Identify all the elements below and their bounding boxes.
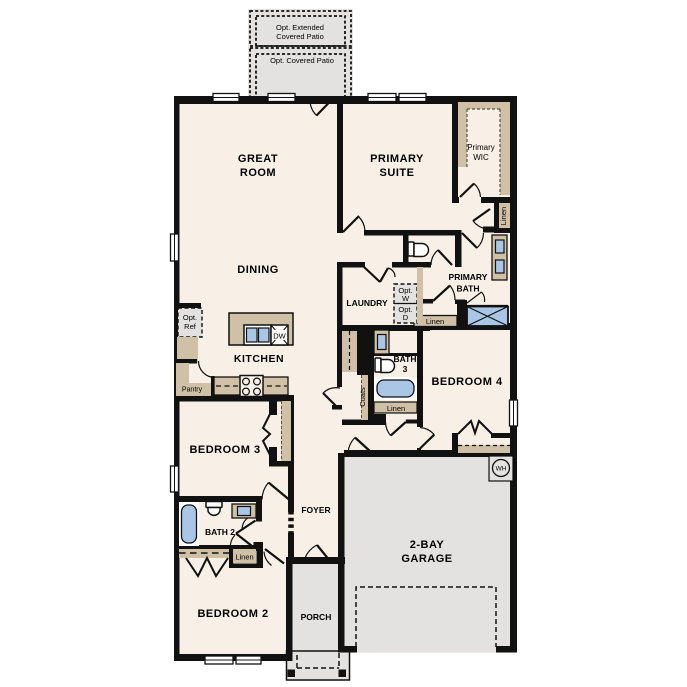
svg-text:2-BAY: 2-BAY: [410, 539, 445, 551]
svg-text:KITCHEN: KITCHEN: [234, 353, 284, 365]
svg-text:PRIMARY: PRIMARY: [370, 153, 424, 165]
svg-text:PRIMARY: PRIMARY: [449, 272, 488, 282]
svg-text:W: W: [402, 294, 410, 303]
svg-text:D: D: [403, 313, 409, 322]
svg-text:LAUNDRY: LAUNDRY: [346, 298, 388, 308]
svg-text:Primary: Primary: [467, 143, 495, 152]
svg-text:Linen: Linen: [499, 207, 508, 225]
svg-text:BATH: BATH: [394, 354, 417, 364]
svg-text:WIC: WIC: [473, 153, 489, 162]
svg-text:DW: DW: [273, 332, 286, 341]
svg-text:Linen: Linen: [235, 553, 253, 562]
svg-text:Pantry: Pantry: [182, 387, 203, 394]
svg-text:BEDROOM 3: BEDROOM 3: [189, 444, 260, 456]
svg-text:PORCH: PORCH: [301, 612, 332, 622]
svg-text:Linen: Linen: [387, 404, 405, 413]
svg-text:DINING: DINING: [237, 264, 279, 276]
svg-text:BATH: BATH: [457, 284, 480, 294]
svg-text:Opt. Extended: Opt. Extended: [276, 23, 324, 32]
svg-text:SUITE: SUITE: [380, 167, 415, 179]
svg-text:BATH 2: BATH 2: [205, 527, 235, 537]
svg-text:BEDROOM 2: BEDROOM 2: [197, 608, 268, 620]
svg-text:ROOM: ROOM: [240, 167, 276, 179]
svg-text:WH: WH: [496, 466, 507, 473]
svg-text:3: 3: [403, 364, 408, 374]
svg-text:Ref: Ref: [184, 322, 197, 331]
svg-text:FOYER: FOYER: [301, 505, 330, 515]
svg-text:GREAT: GREAT: [238, 153, 278, 165]
svg-text:BEDROOM 4: BEDROOM 4: [431, 376, 503, 388]
svg-text:Covered Patio: Covered Patio: [276, 32, 324, 41]
svg-text:Coats: Coats: [358, 387, 367, 407]
svg-text:Opt.: Opt.: [183, 313, 197, 322]
svg-text:Linen: Linen: [426, 317, 444, 326]
svg-text:GARAGE: GARAGE: [401, 553, 452, 565]
svg-text:Opt. Covered Patio: Opt. Covered Patio: [270, 56, 334, 65]
